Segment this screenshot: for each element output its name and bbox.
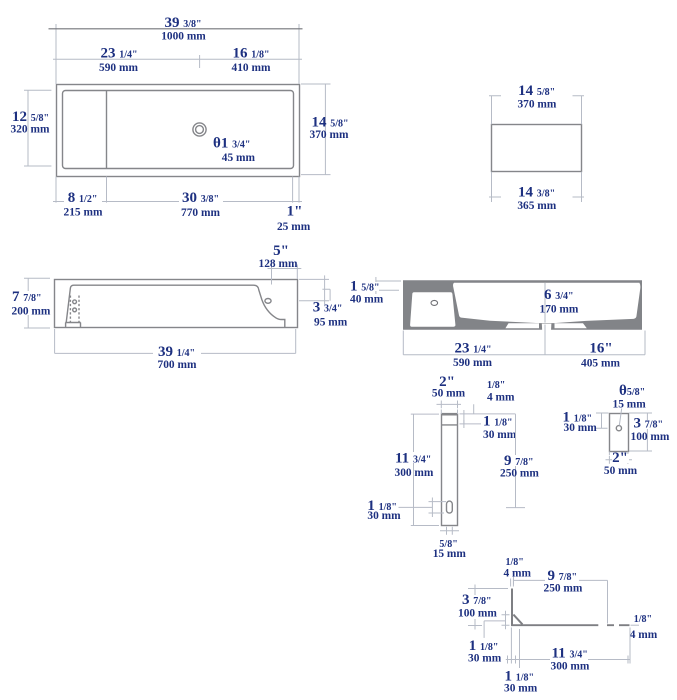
svg-text:1000 mm: 1000 mm xyxy=(161,31,206,43)
svg-text:405 mm: 405 mm xyxy=(581,357,620,369)
svg-text:45 mm: 45 mm xyxy=(222,152,256,164)
svg-text:100 mm: 100 mm xyxy=(631,431,670,443)
svg-text:1/8": 1/8" xyxy=(487,380,505,391)
svg-text:700 mm: 700 mm xyxy=(158,359,197,371)
svg-text:30 mm: 30 mm xyxy=(564,422,598,434)
svg-text:25 mm: 25 mm xyxy=(277,221,311,233)
svg-text:300 mm: 300 mm xyxy=(551,660,590,672)
svg-text:590 mm: 590 mm xyxy=(453,357,492,369)
svg-text:370 mm: 370 mm xyxy=(517,99,556,111)
svg-text:100 mm: 100 mm xyxy=(458,608,497,620)
svg-text:2": 2" xyxy=(612,450,628,466)
svg-text:15 mm: 15 mm xyxy=(433,548,467,560)
svg-text:410 mm: 410 mm xyxy=(232,62,271,74)
svg-text:50 mm: 50 mm xyxy=(432,387,466,399)
svg-text:1/8": 1/8" xyxy=(506,557,524,568)
svg-text:370 mm: 370 mm xyxy=(310,129,349,141)
svg-text:4 mm: 4 mm xyxy=(504,567,532,579)
svg-text:365 mm: 365 mm xyxy=(517,200,556,212)
svg-text:95 mm: 95 mm xyxy=(314,316,348,328)
svg-text:50 mm: 50 mm xyxy=(604,465,638,477)
svg-text:1/8": 1/8" xyxy=(634,614,652,625)
svg-text:590 mm: 590 mm xyxy=(99,62,138,74)
svg-text:1": 1" xyxy=(287,204,303,220)
svg-text:30 mm: 30 mm xyxy=(504,683,538,695)
svg-text:5": 5" xyxy=(273,243,289,259)
svg-text:4 mm: 4 mm xyxy=(630,629,658,641)
svg-text:300 mm: 300 mm xyxy=(395,467,434,479)
svg-text:250 mm: 250 mm xyxy=(544,582,583,594)
svg-text:30 mm: 30 mm xyxy=(367,510,401,522)
svg-text:320 mm: 320 mm xyxy=(11,124,50,136)
svg-text:170 mm: 170 mm xyxy=(540,303,579,315)
svg-text:215 mm: 215 mm xyxy=(64,206,103,218)
svg-text:30 mm: 30 mm xyxy=(483,429,517,441)
svg-text:128 mm: 128 mm xyxy=(259,258,298,270)
svg-text:40 mm: 40 mm xyxy=(350,293,384,305)
svg-text:4 mm: 4 mm xyxy=(487,392,515,404)
svg-text:250 mm: 250 mm xyxy=(500,467,539,479)
svg-text:200 mm: 200 mm xyxy=(12,305,51,317)
svg-text:770 mm: 770 mm xyxy=(181,207,220,219)
svg-text:16": 16" xyxy=(589,341,612,357)
svg-text:15 mm: 15 mm xyxy=(613,399,647,411)
svg-text:30 mm: 30 mm xyxy=(468,652,502,664)
